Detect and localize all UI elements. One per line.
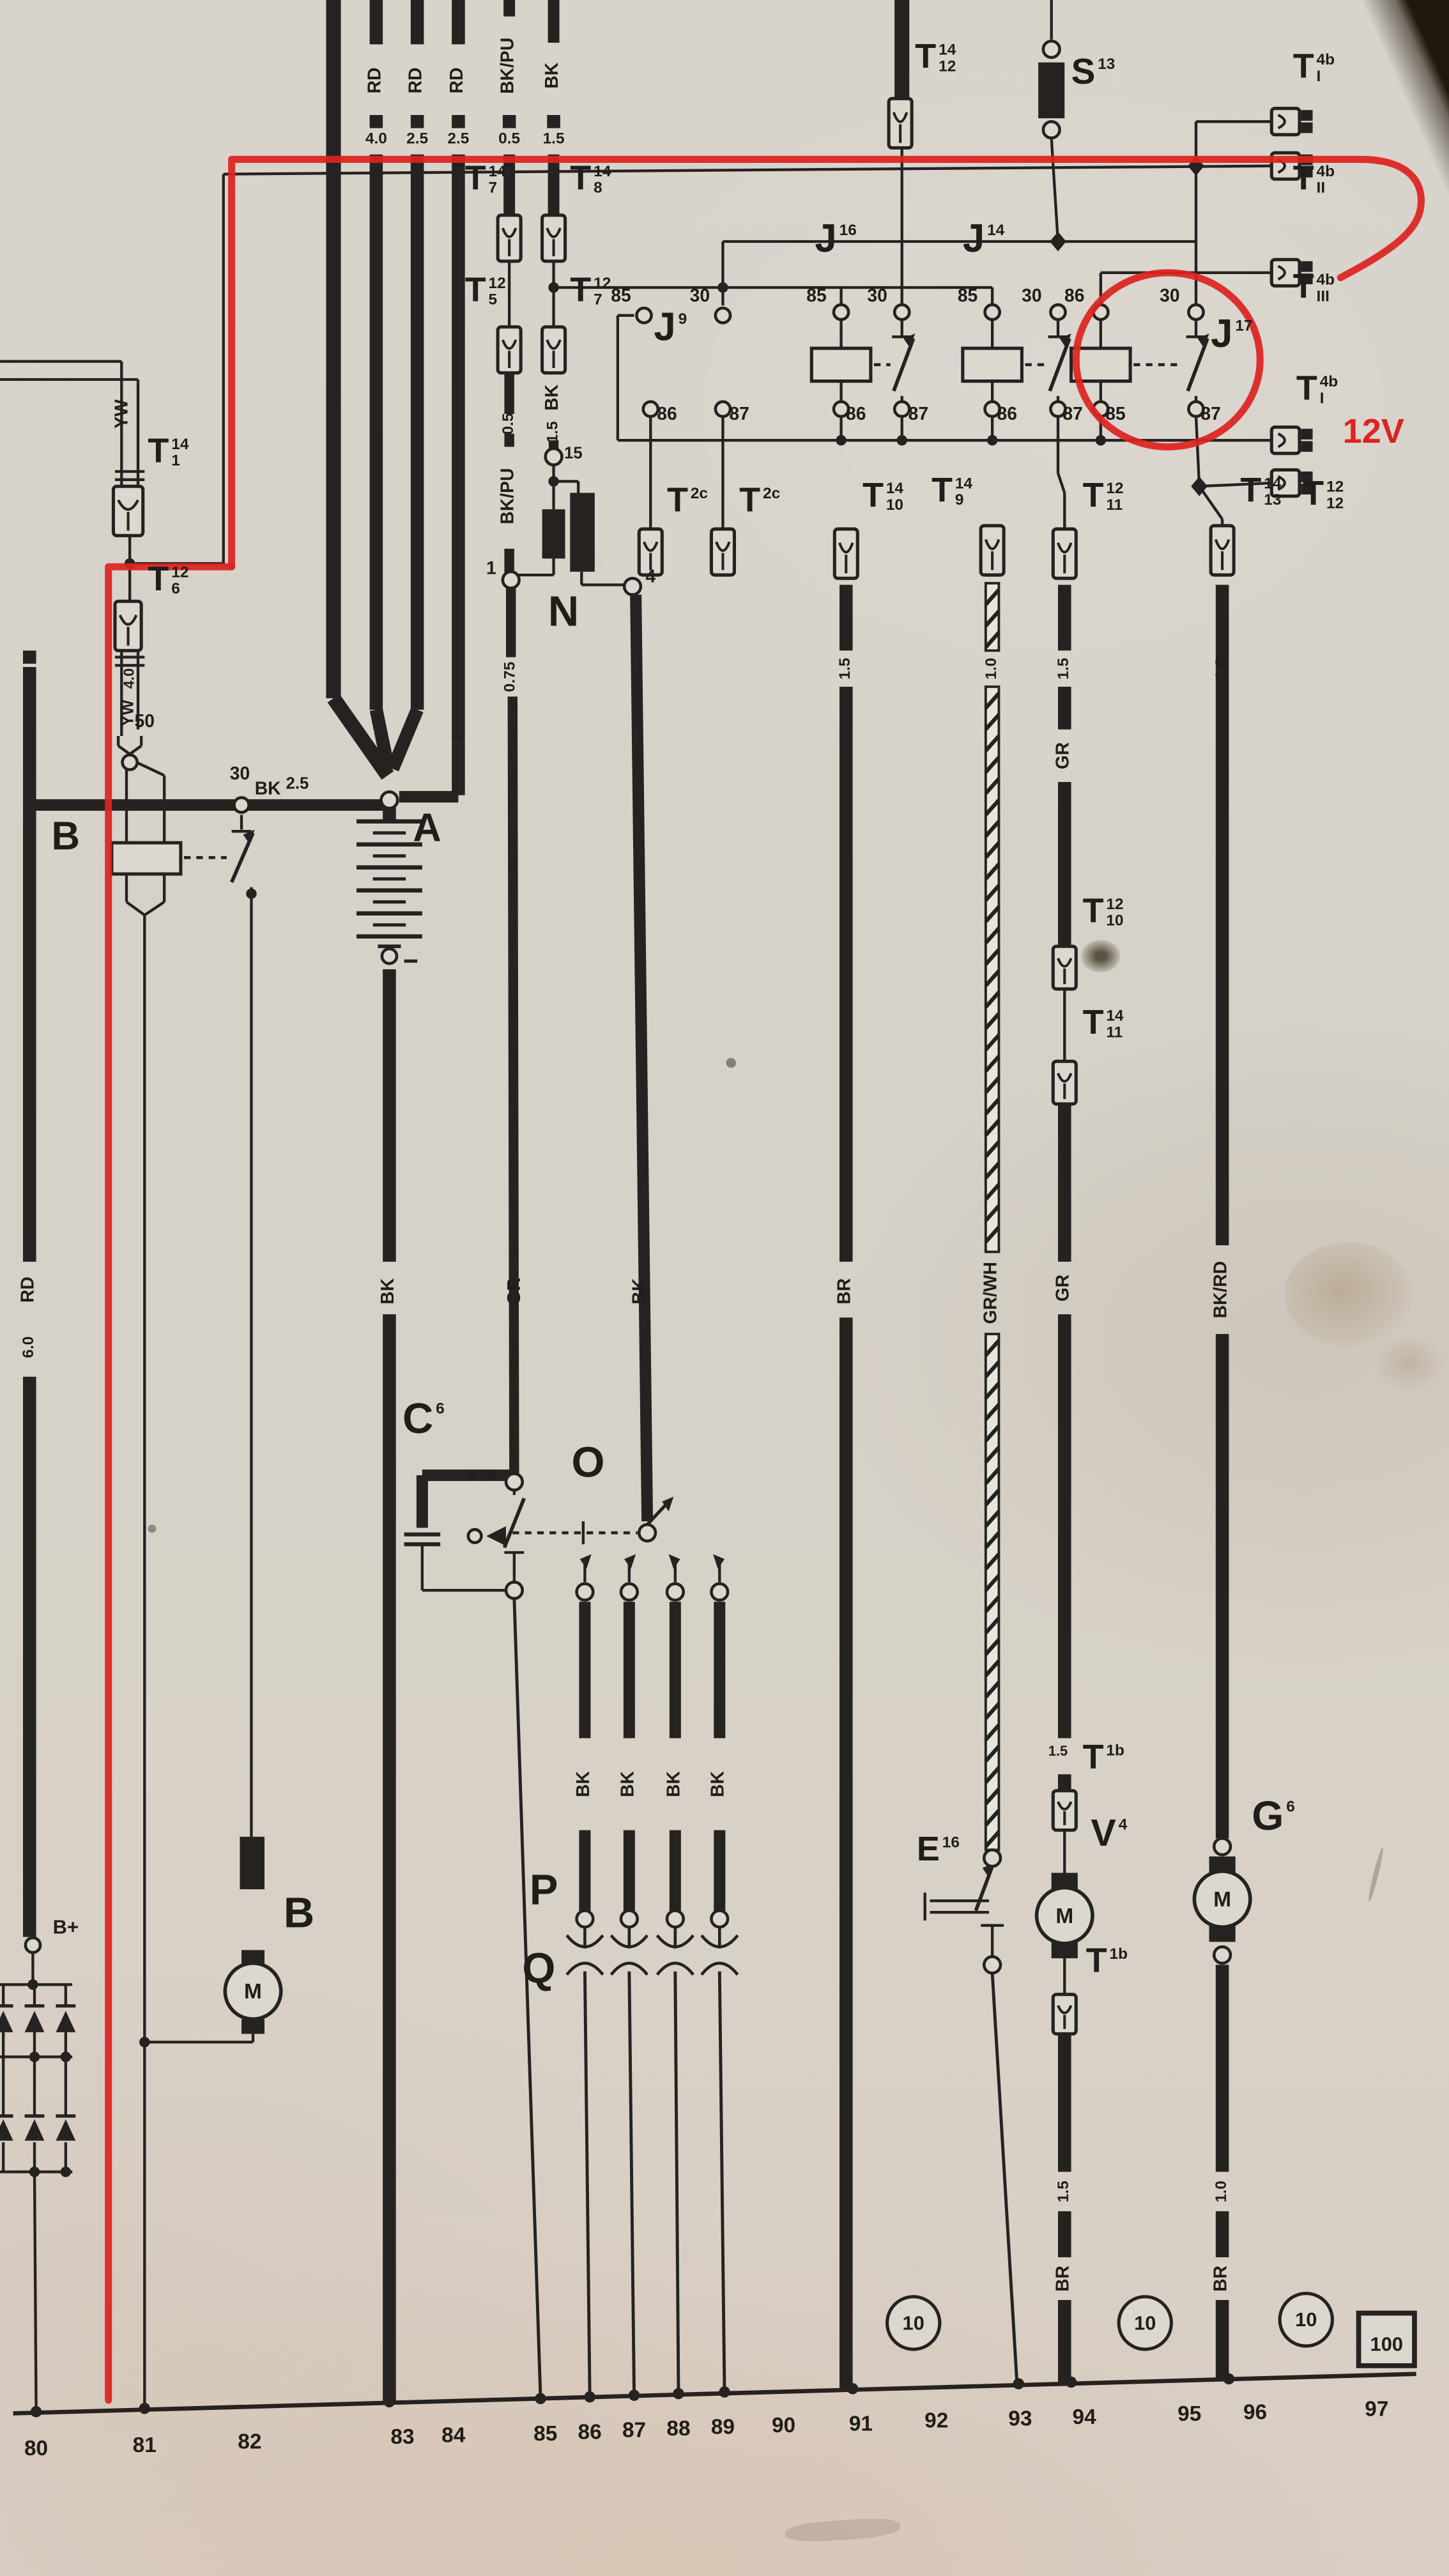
photo-of-wiring-diagram: RDRDRDBK/PUBK4.02.52.50.51.5T1412S13T4bI… [0, 0, 1449, 2576]
schematic-linework [0, 0, 1449, 2576]
